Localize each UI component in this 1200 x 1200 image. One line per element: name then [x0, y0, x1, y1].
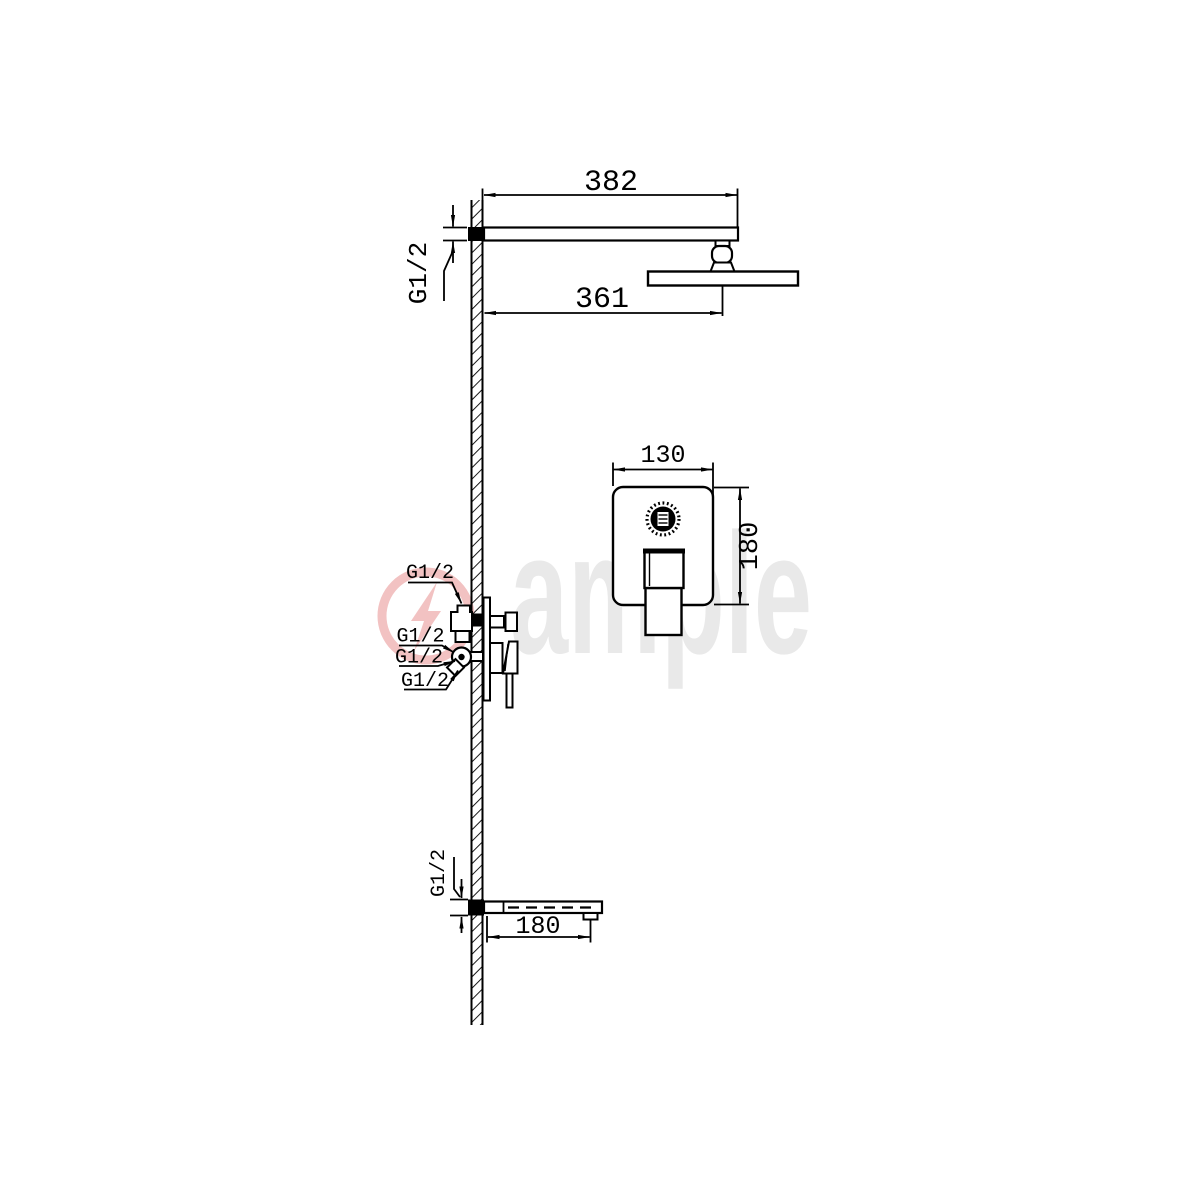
valve-body-mid — [456, 631, 470, 642]
dim-head-reach: 361 — [485, 283, 722, 317]
dim-panel-height-value: 180 — [736, 522, 766, 571]
thread-label-arm: G1/2 — [404, 205, 467, 304]
mixer-handle-lower — [646, 588, 682, 635]
mixer-handle-top-edge — [643, 549, 685, 554]
valve-wall-port — [472, 614, 483, 627]
dim-spout-length-value: 180 — [515, 912, 560, 941]
shower-head — [648, 272, 798, 286]
technical-drawing-page: ample 382 361 G1/2 — [0, 0, 1200, 1200]
thread-valve-top-value: G1/2 — [406, 562, 454, 585]
dim-arm-length: 382 — [483, 166, 738, 227]
shower-system-drawing: ample 382 361 G1/2 — [0, 0, 1200, 1200]
shower-arm-assembly — [468, 227, 798, 316]
dim-head-reach-value: 361 — [575, 283, 629, 317]
thread-spout-value: G1/2 — [428, 849, 451, 897]
thread-arm-value: G1/2 — [404, 242, 434, 304]
mixer-handle-upper — [645, 550, 684, 588]
ball-joint — [712, 246, 732, 263]
diverter-stem-side — [490, 616, 504, 628]
valve-inlet-center — [458, 654, 464, 660]
valve-trim — [484, 598, 518, 708]
spout-outlet — [584, 913, 598, 920]
dim-arm-length-value: 382 — [584, 166, 638, 200]
spout-wall-connector — [468, 900, 484, 916]
shower-arm — [484, 228, 738, 241]
thread-label-spout: G1/2 — [428, 849, 468, 933]
diverter-knob-side — [506, 613, 518, 632]
valve-body-top — [451, 606, 472, 632]
lever-rod — [507, 674, 513, 708]
arm-wall-connector — [468, 227, 484, 241]
head-mount — [711, 263, 735, 272]
dim-spout-length: 180 — [487, 912, 591, 943]
lever-base — [490, 643, 503, 673]
dim-panel-width-value: 130 — [640, 441, 685, 470]
